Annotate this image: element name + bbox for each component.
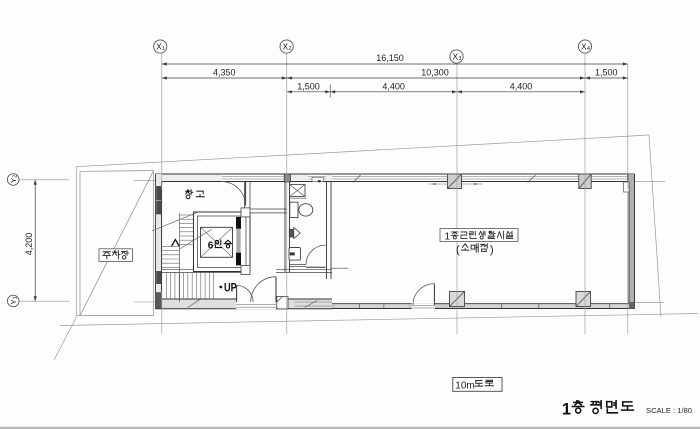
svg-text:1,500: 1,500	[595, 67, 618, 77]
svg-text:3: 3	[458, 56, 461, 62]
svg-text:Y: Y	[9, 178, 18, 183]
svg-text:4,400: 4,400	[382, 81, 405, 91]
svg-text:Y: Y	[9, 299, 18, 304]
svg-text:): )	[490, 244, 494, 256]
svg-text:10m: 10m	[455, 381, 474, 392]
svg-text:10,300: 10,300	[421, 67, 449, 77]
svg-text:4: 4	[587, 46, 590, 52]
svg-text:1: 1	[562, 400, 571, 418]
svg-text:2: 2	[289, 46, 292, 52]
svg-text:UP: UP	[224, 282, 237, 294]
svg-text:4,200: 4,200	[24, 233, 34, 256]
svg-text:1,500: 1,500	[297, 81, 320, 91]
svg-text:1: 1	[162, 46, 165, 52]
svg-text:16,150: 16,150	[376, 53, 404, 63]
svg-text:1: 1	[445, 231, 451, 242]
svg-text:(: (	[456, 244, 460, 256]
svg-text:4,400: 4,400	[510, 81, 533, 91]
svg-text:2: 2	[12, 175, 18, 178]
svg-text:SCALE : 1/80: SCALE : 1/80	[646, 406, 692, 415]
svg-text:6: 6	[208, 241, 214, 252]
svg-text:4,350: 4,350	[213, 67, 236, 77]
svg-text:1: 1	[12, 296, 18, 299]
